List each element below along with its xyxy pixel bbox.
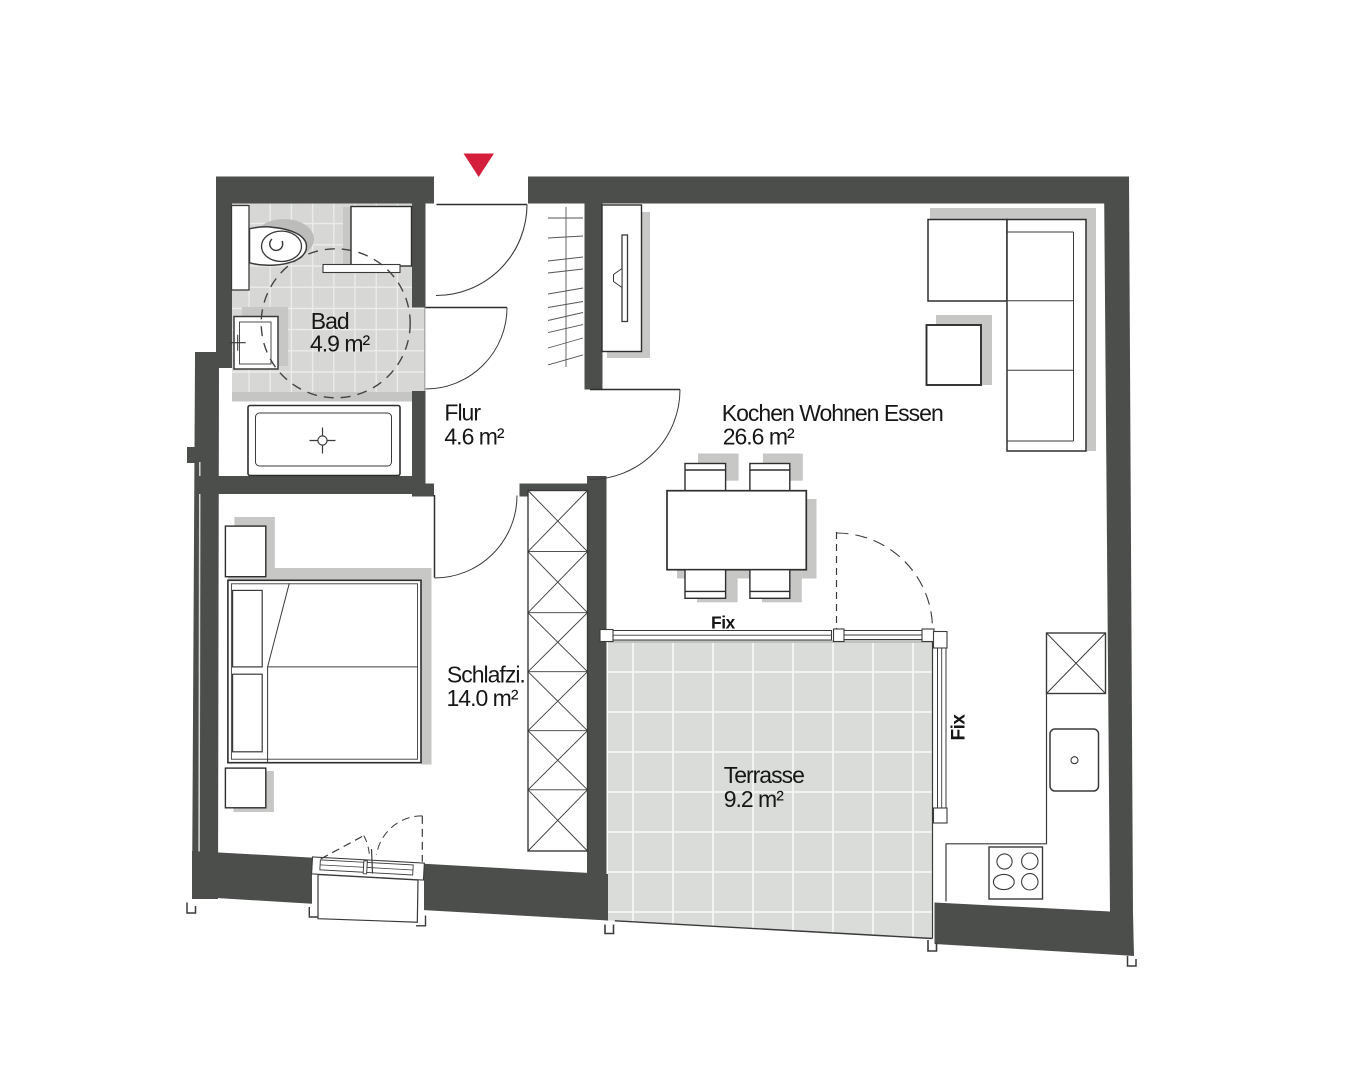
svg-text:Schlafzi.: Schlafzi. bbox=[447, 662, 525, 688]
svg-text:9.2 m²: 9.2 m² bbox=[724, 786, 785, 812]
svg-text:4.9 m²: 4.9 m² bbox=[310, 331, 371, 357]
svg-text:Terrasse: Terrasse bbox=[724, 762, 804, 788]
svg-text:Kochen Wohnen Essen: Kochen Wohnen Essen bbox=[722, 400, 943, 426]
svg-text:14.0 m²: 14.0 m² bbox=[447, 685, 519, 711]
svg-text:Fix: Fix bbox=[949, 714, 970, 741]
svg-text:Fix: Fix bbox=[711, 612, 736, 632]
svg-text:26.6 m²: 26.6 m² bbox=[723, 424, 795, 450]
svg-text:4.6 m²: 4.6 m² bbox=[444, 423, 505, 449]
svg-text:Flur: Flur bbox=[444, 400, 481, 426]
